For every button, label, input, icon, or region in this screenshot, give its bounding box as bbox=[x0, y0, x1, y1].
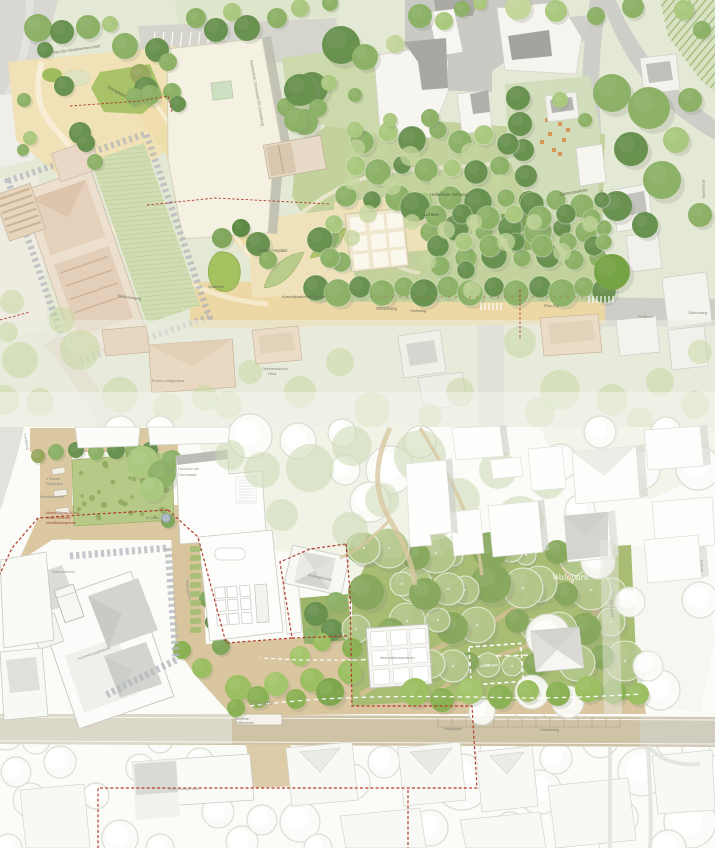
svg-text:Brunnen: Brunnen bbox=[146, 516, 160, 520]
svg-text:4 Sonder: 4 Sonder bbox=[46, 477, 61, 481]
svg-text:Haus: Haus bbox=[268, 372, 277, 376]
svg-text:Waldpark: Waldpark bbox=[552, 573, 589, 583]
svg-text:Parkplätze: Parkplätze bbox=[46, 482, 63, 486]
svg-text:Hellerhain Gehang: Hellerhain Gehang bbox=[430, 192, 468, 197]
svg-text:Abstellflächen 10 m2: Abstellflächen 10 m2 bbox=[46, 511, 79, 515]
svg-text:Ernst-Ludwig-Haus: Ernst-Ludwig-Haus bbox=[152, 379, 184, 383]
svg-text:Hochschule: Hochschule bbox=[178, 466, 200, 471]
svg-text:Oberhessisches: Oberhessisches bbox=[262, 367, 288, 371]
svg-text:Kurzmitparken-Westufer: Kurzmitparken-Westufer bbox=[282, 294, 326, 299]
svg-text:Vorplatz: Vorplatz bbox=[250, 699, 274, 707]
svg-text:Olbrichweg: Olbrichweg bbox=[376, 306, 398, 311]
svg-text:Informationszentrum: Informationszentrum bbox=[380, 656, 415, 660]
svg-text:Parkplätze: Parkplätze bbox=[444, 727, 462, 731]
svg-text:Mobilitätsangebote: Mobilitätsangebote bbox=[46, 521, 76, 525]
svg-text:Olbrichweg: Olbrichweg bbox=[688, 311, 707, 315]
svg-text:Darmstadt: Darmstadt bbox=[178, 472, 197, 477]
svg-text:Wendehammer: Wendehammer bbox=[40, 495, 65, 499]
svg-text:Ernst-Ludwig-Haus: Ernst-Ludwig-Haus bbox=[168, 787, 199, 791]
svg-text:Lichtwie: Lichtwie bbox=[424, 212, 440, 217]
svg-text:Stellbeet: Stellbeet bbox=[638, 315, 654, 319]
svg-text:weiter führende: weiter führende bbox=[46, 516, 71, 520]
svg-text:Pkw-Stp: Pkw-Stp bbox=[544, 303, 560, 308]
svg-text:Grüner Vorplatz: Grüner Vorplatz bbox=[258, 248, 287, 253]
svg-text:Ohrtsweg: Ohrtsweg bbox=[410, 309, 426, 313]
svg-text:Stadtbiel: Stadtbiel bbox=[208, 284, 224, 289]
svg-text:Olbrichweg: Olbrichweg bbox=[540, 728, 559, 732]
svg-text:Haltepunkte: Haltepunkte bbox=[236, 721, 254, 725]
svg-text:Hochzeitsturm: Hochzeitsturm bbox=[52, 570, 75, 574]
